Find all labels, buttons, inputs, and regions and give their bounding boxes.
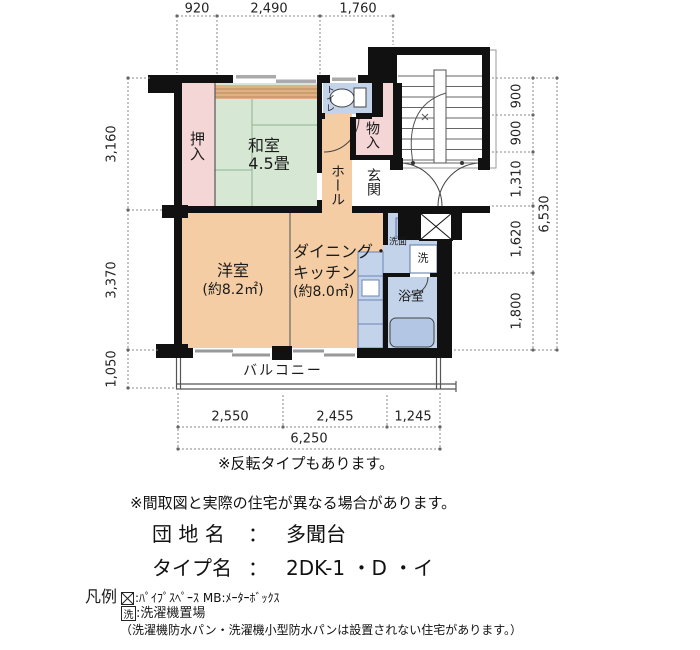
- room-label-dk1: ダイニング・: [293, 244, 389, 260]
- dim-top-2: 1,760: [339, 3, 376, 16]
- reverse-type-note: ※反転タイプもあります。: [218, 457, 394, 472]
- dim-top-0: 920: [185, 3, 210, 16]
- dim-left-0: 3,160: [106, 125, 119, 162]
- room-label-entrance: 玄関: [366, 168, 380, 196]
- kitchen-counter: [358, 252, 383, 348]
- dim-left-2: 1,050: [106, 350, 119, 387]
- dim-bottom-0: 2,550: [211, 411, 248, 424]
- room-label-laundry: 洗: [418, 253, 429, 264]
- room-label-dk3: (約8.0㎡): [293, 285, 354, 299]
- bathtub: [390, 318, 434, 347]
- room-label-washstand: 洗面: [389, 239, 407, 248]
- room-label-dk2: キッチン: [293, 265, 357, 281]
- dim-left-1: 3,370: [106, 261, 119, 298]
- room-label-washitsu-size: 4.5畳: [248, 156, 289, 172]
- legend-title: 凡例: [85, 589, 117, 605]
- estate-type-separator: ：: [248, 558, 268, 578]
- legend-note: （洗濯機防水パン・洗濯機小型防水パンは設置されない住宅があります。）: [120, 624, 522, 636]
- toilet-fixture: [330, 88, 366, 107]
- dim-bottom-1: 2,455: [316, 411, 353, 424]
- estate-name-label: 団 地 名: [152, 524, 225, 544]
- laundry-symbol-icon: 洗: [121, 606, 136, 621]
- legend-pipe-space: :ﾊﾟｲﾌﾟｽﾍﾟｰｽ MB:ﾒｰﾀｰﾎﾞｯｸｽ: [135, 592, 280, 604]
- dim-right-2: 1,310: [511, 160, 524, 197]
- dim-right-total: 6,530: [539, 195, 552, 232]
- dim-right-0: 900: [511, 84, 524, 109]
- room-label-hall: ホール: [330, 164, 344, 206]
- room-label-balcony: バルコニー: [243, 364, 323, 378]
- staircase: [398, 70, 482, 165]
- room-label-toilet: トイレ: [324, 85, 333, 112]
- dim-right-4: 1,800: [511, 292, 524, 329]
- pipe-space-icon: [121, 592, 134, 605]
- estate-type-label: タイプ名: [152, 558, 232, 578]
- dim-top-1: 2,490: [250, 3, 287, 16]
- room-label-washitsu: 和室: [248, 138, 280, 154]
- floorplan-page: 押入 和室 4.5畳 トイレ 物入 ホール 玄関 洋室 (約8.2㎡) ダイニン…: [0, 0, 700, 650]
- floorplan-drawing: [0, 0, 700, 650]
- dim-right-1: 900: [511, 121, 524, 146]
- room-label-oshiire: 押入: [189, 131, 204, 161]
- room-label-bathroom: 浴室: [398, 291, 424, 304]
- estate-type-value: 2DK-1 ・D ・イ: [286, 558, 433, 578]
- pipe-space-box: [420, 213, 452, 240]
- legend-laundry: :洗濯機置場: [136, 607, 205, 620]
- estate-name-value: 多聞台: [286, 524, 346, 544]
- estate-name-separator: ：: [248, 524, 268, 544]
- room-label-western-size: (約8.2㎡): [202, 283, 263, 297]
- dim-right-3: 1,620: [511, 220, 524, 257]
- room-label-storage: 物入: [365, 121, 379, 149]
- dim-bottom-total: 6,250: [290, 433, 327, 446]
- room-label-western: 洋室: [217, 263, 249, 279]
- disclaimer-note: ※間取図と実際の住宅が異なる場合があります。: [130, 496, 456, 511]
- dim-bottom-2: 1,245: [394, 411, 431, 424]
